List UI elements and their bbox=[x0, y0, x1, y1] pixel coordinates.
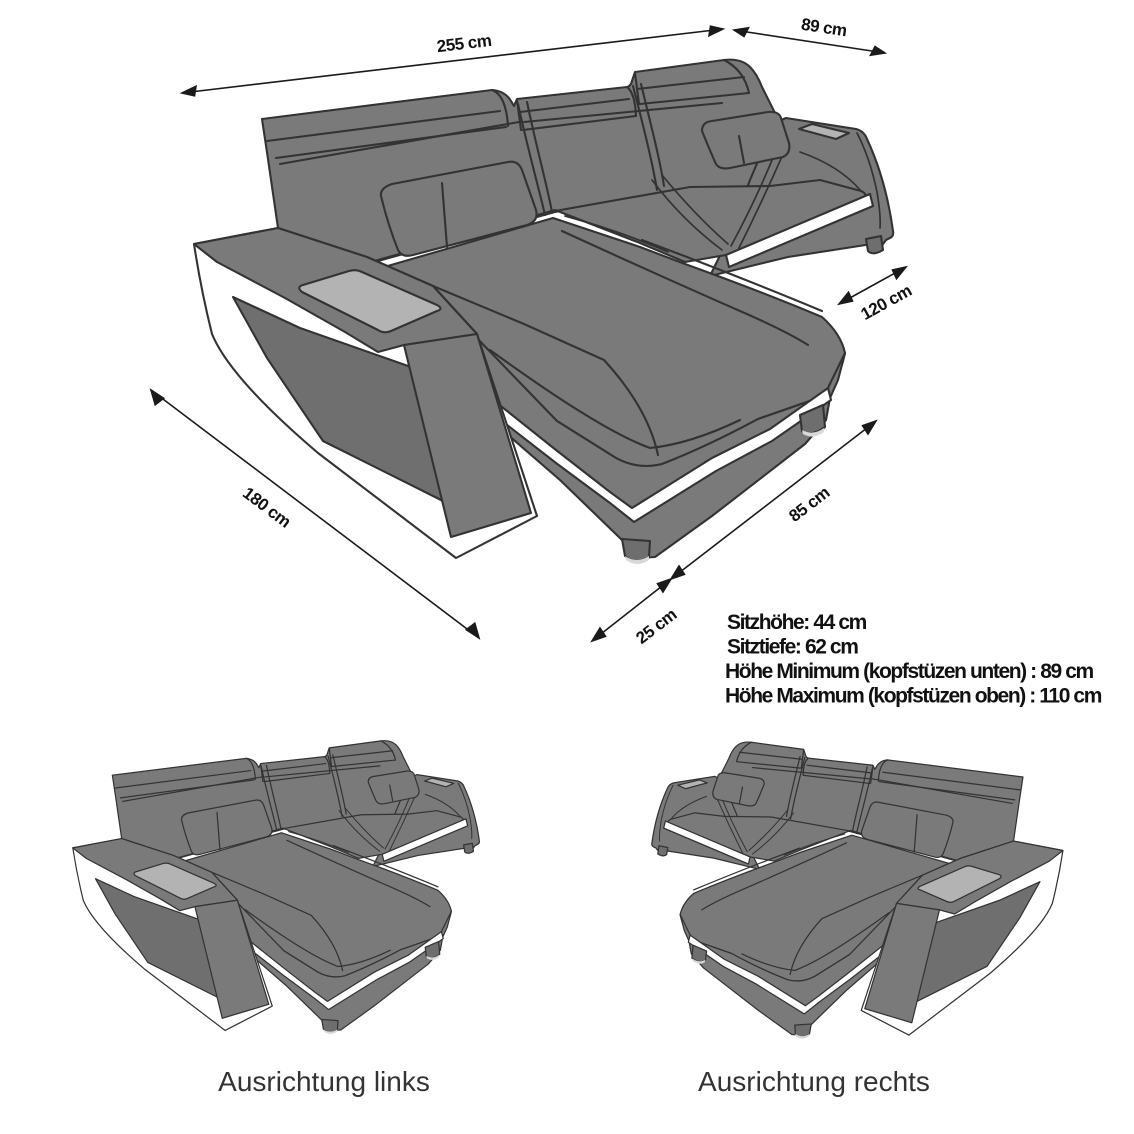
svg-text:180 cm: 180 cm bbox=[239, 483, 294, 531]
svg-text:25 cm: 25 cm bbox=[632, 605, 680, 648]
svg-text:255 cm: 255 cm bbox=[436, 31, 493, 56]
svg-text:Sitzhöhe: 44 cm: Sitzhöhe: 44 cm bbox=[727, 611, 867, 634]
svg-text:Ausrichtung links: Ausrichtung links bbox=[218, 1066, 430, 1097]
svg-text:120 cm: 120 cm bbox=[858, 281, 915, 324]
svg-text:Sitztiefe: 62 cm: Sitztiefe: 62 cm bbox=[727, 636, 858, 659]
svg-text:85 cm: 85 cm bbox=[785, 483, 833, 526]
svg-text:Höhe Maximum (kopfstüzen oben): Höhe Maximum (kopfstüzen oben) : 110 cm bbox=[725, 685, 1102, 708]
svg-text:Ausrichtung rechts: Ausrichtung rechts bbox=[698, 1066, 930, 1097]
svg-text:Höhe Minimum (kopfstüzen unten: Höhe Minimum (kopfstüzen unten) : 89 cm bbox=[725, 660, 1093, 683]
svg-text:89 cm: 89 cm bbox=[800, 15, 848, 41]
